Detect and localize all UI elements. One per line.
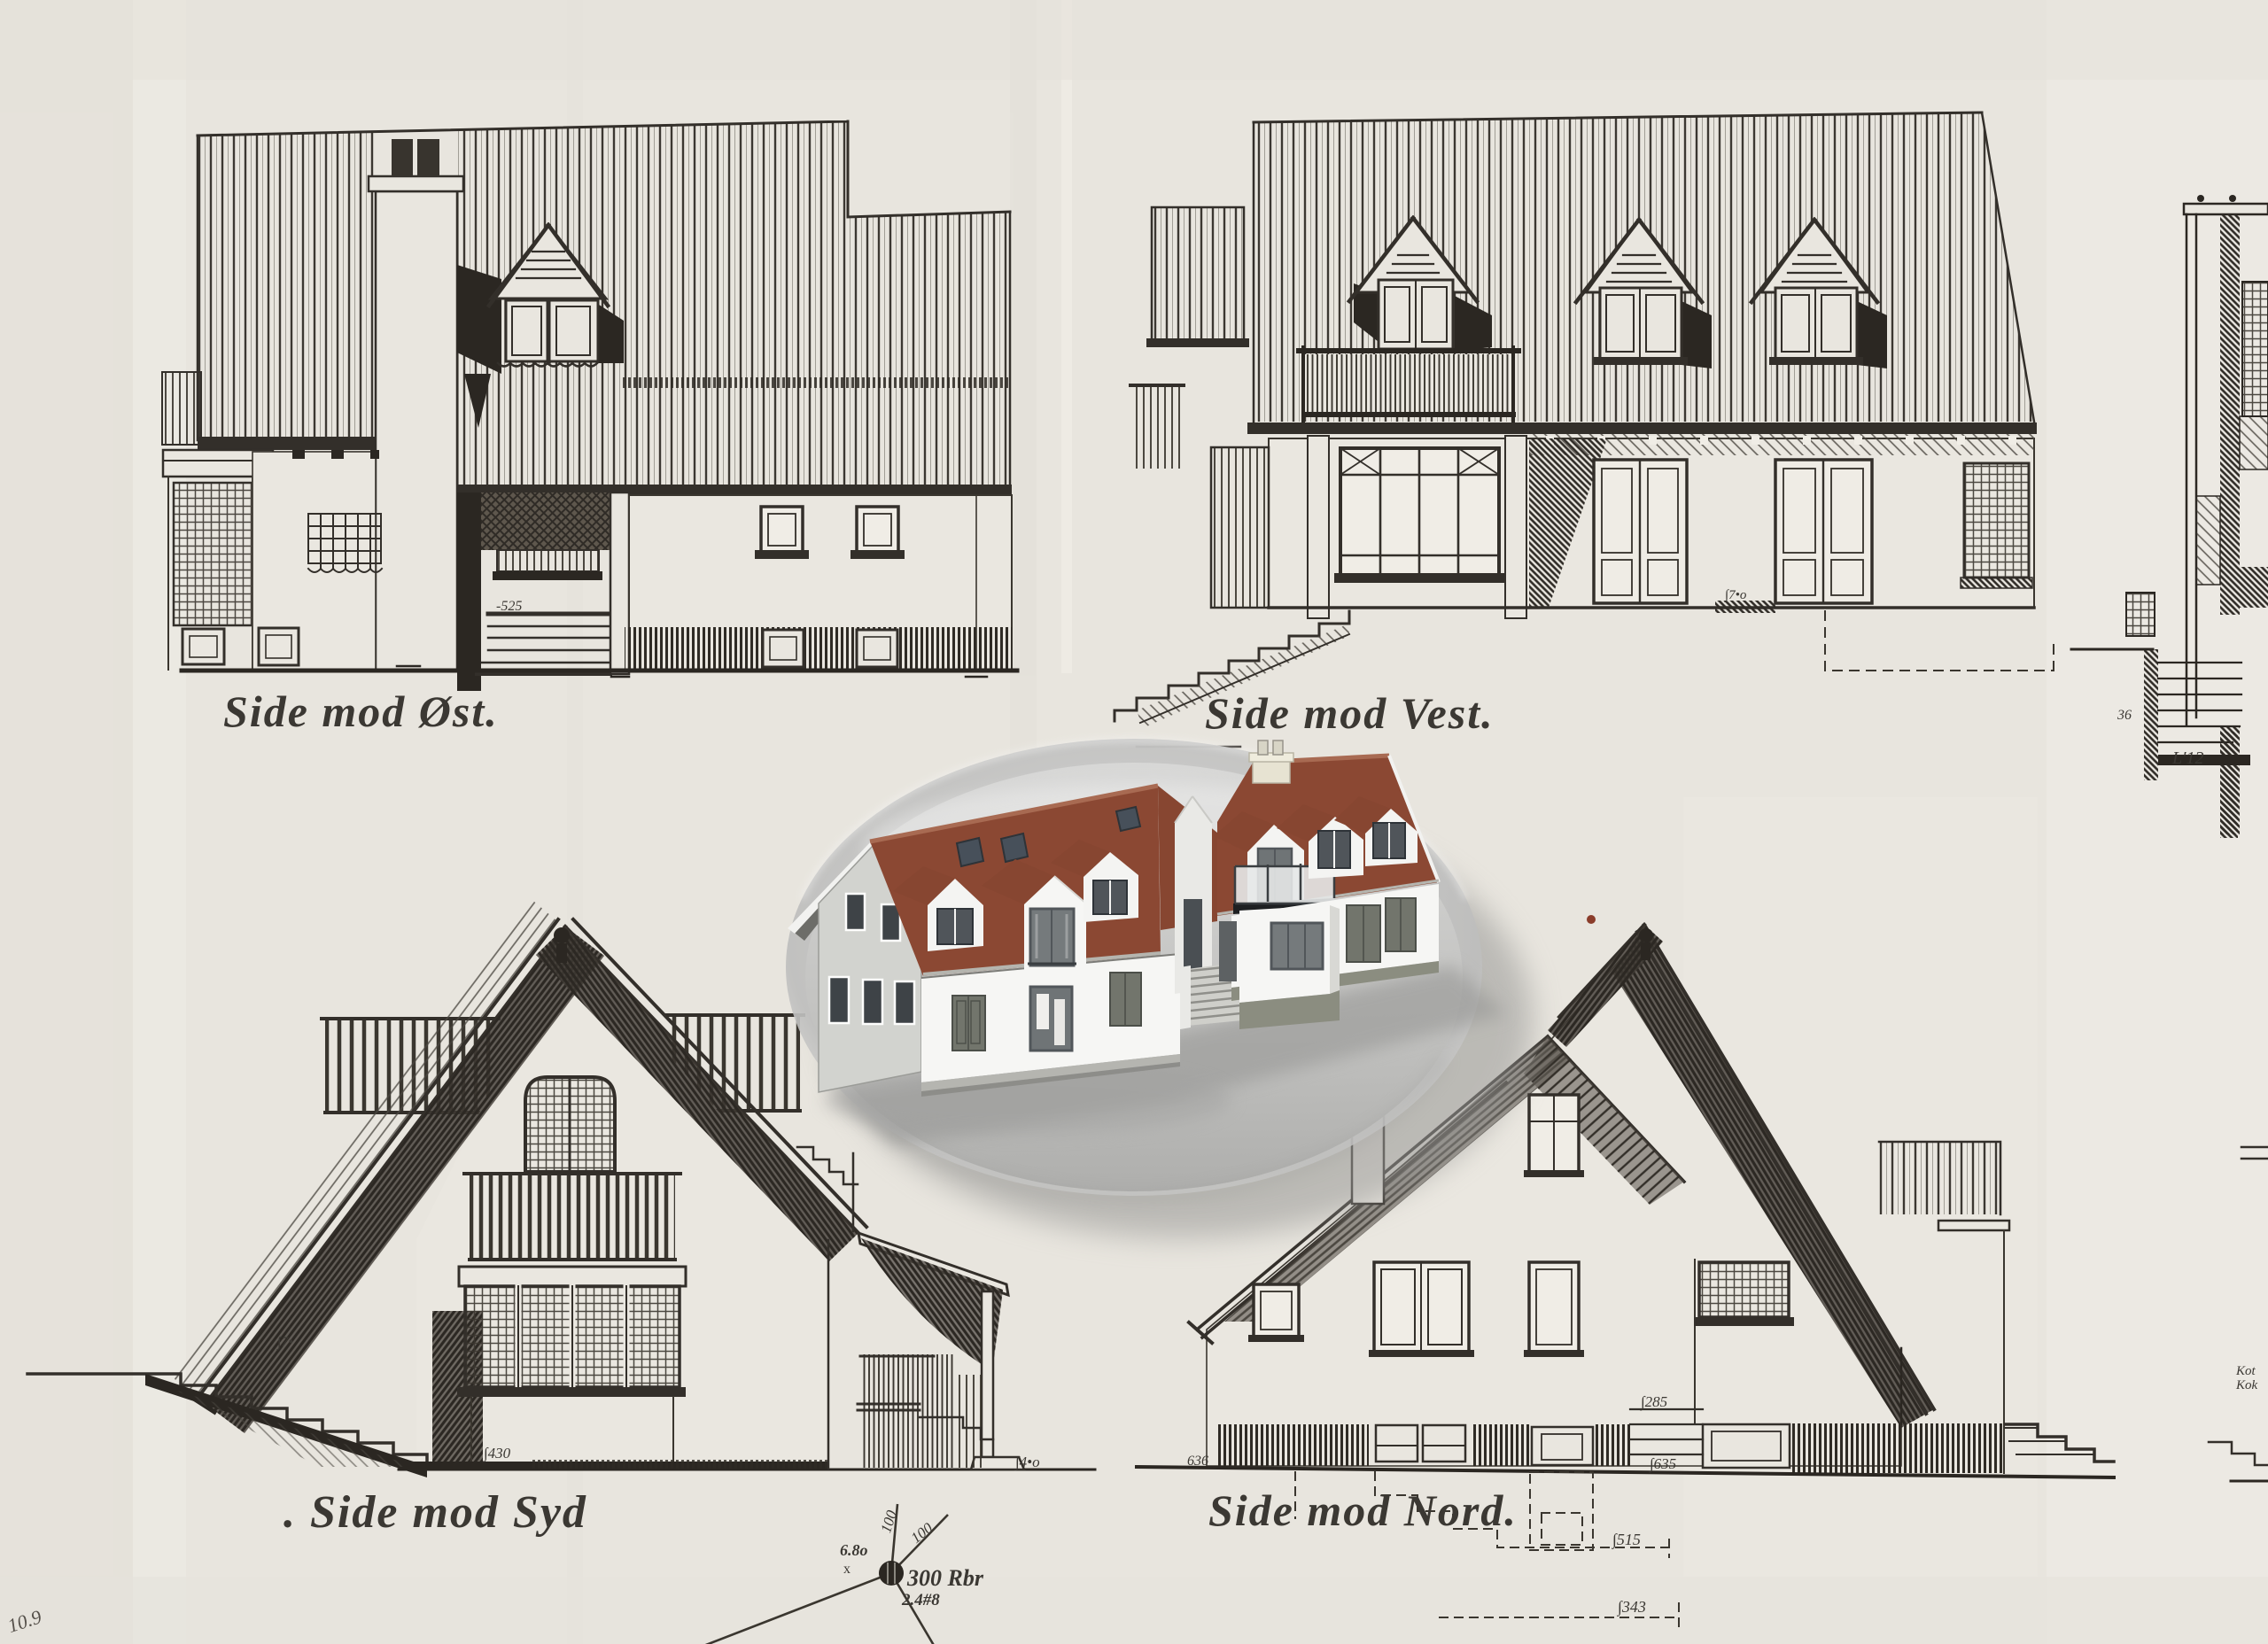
- svg-text:Side mod Øst.: Side mod Øst.: [223, 686, 499, 736]
- svg-text:L′12: L′12: [2171, 748, 2204, 768]
- svg-text:∫7•: ∫7•: [276, 1335, 293, 1351]
- svg-text:Side mod Vest.: Side mod Vest.: [1205, 688, 1495, 738]
- svg-text:. Side mod Syd: . Side mod Syd: [283, 1487, 587, 1538]
- svg-text:300 Rbr: 300 Rbr: [906, 1565, 984, 1591]
- svg-text:-525: -525: [496, 599, 522, 614]
- svg-text:∫635: ∫635: [1649, 1455, 1676, 1473]
- svg-text:∫4•o: ∫4•o: [1014, 1454, 1040, 1471]
- svg-text:Kok: Kok: [2235, 1378, 2258, 1392]
- svg-text:36: 36: [2117, 708, 2132, 723]
- svg-text:x: x: [843, 1562, 850, 1577]
- svg-text:∫430: ∫430: [483, 1445, 511, 1462]
- svg-text:Side mod Nord.: Side mod Nord.: [1208, 1485, 1518, 1535]
- svg-text:∫343: ∫343: [1617, 1598, 1646, 1617]
- svg-text:∫285: ∫285: [1640, 1393, 1667, 1411]
- svg-text:∫515: ∫515: [1612, 1531, 1641, 1549]
- svg-text:2.4#8: 2.4#8: [901, 1591, 940, 1609]
- svg-text:Kot: Kot: [2235, 1364, 2256, 1378]
- svg-text:∫7•o: ∫7•o: [1724, 588, 1747, 602]
- svg-text:636: 636: [1187, 1454, 1208, 1469]
- svg-text:6.8o: 6.8o: [840, 1541, 868, 1559]
